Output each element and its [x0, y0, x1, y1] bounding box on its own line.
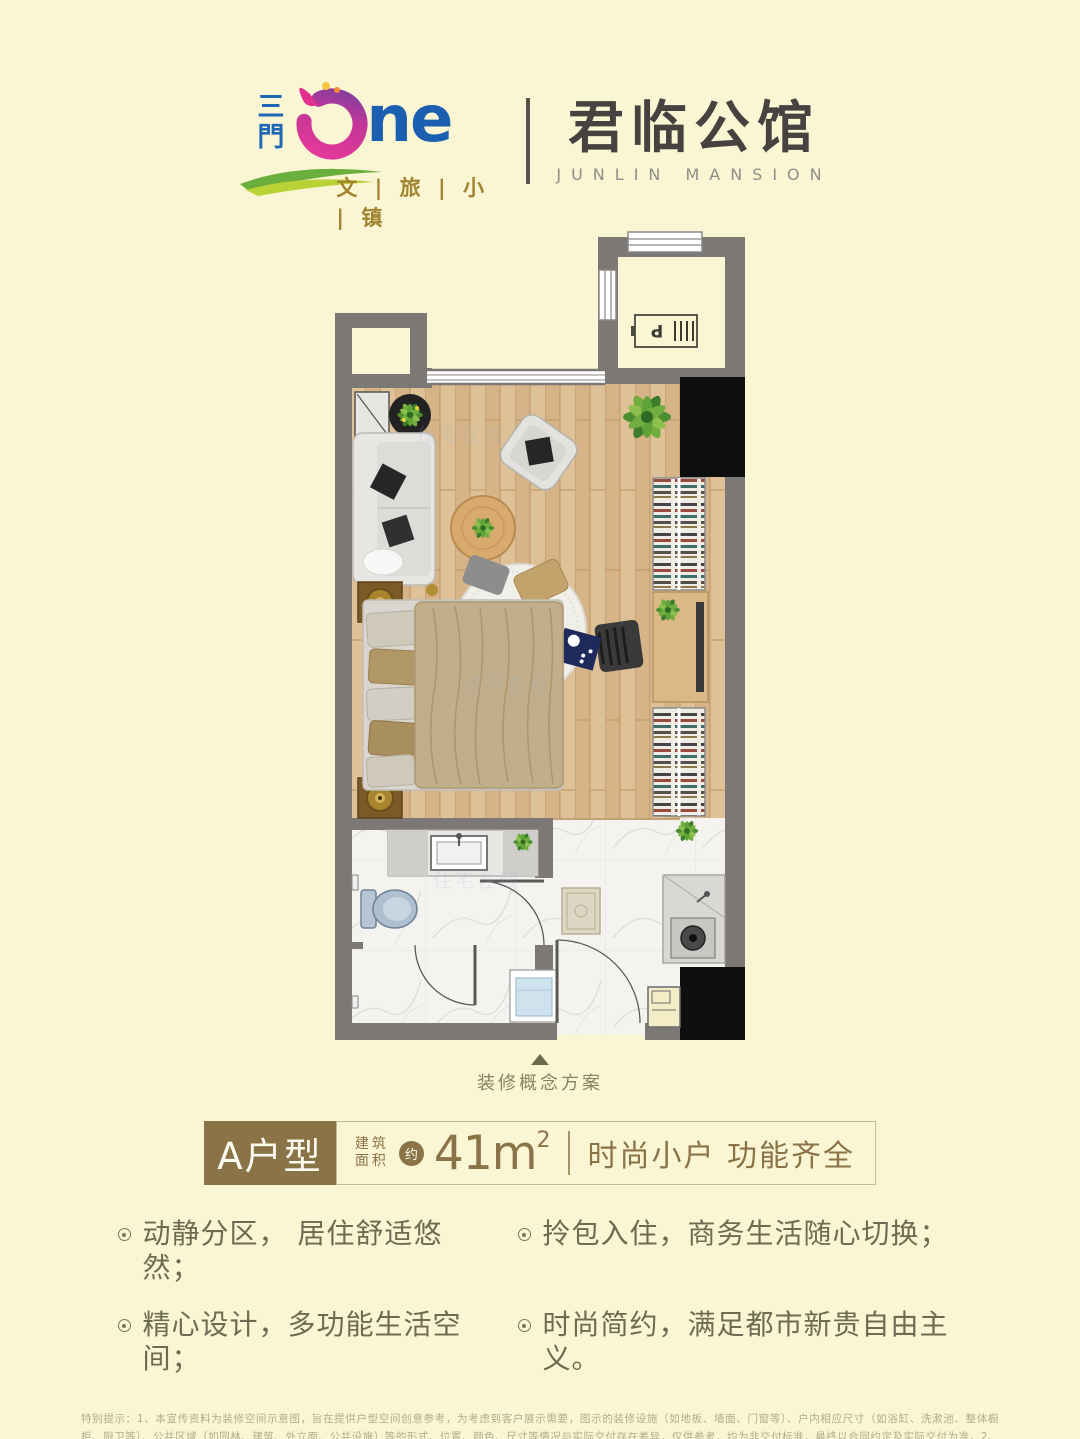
unit-type-badge: A户型 [204, 1121, 336, 1185]
desk [653, 592, 708, 702]
brand-header: 三門 ne 文 | 旅 | 小 | 镇 君临公馆 J [0, 0, 1080, 202]
approx-badge: 约 [399, 1141, 424, 1166]
ac-unit: P [631, 315, 697, 347]
desk-chair [594, 619, 644, 673]
unit-badge-row: A户型 建筑 面积 约 41m2 时尚小户 功能齐全 [0, 1121, 1080, 1185]
window-living [427, 369, 605, 385]
bookshelf-bottom [653, 708, 705, 816]
feature-item: 拎包入住，商务生活随心切换； [518, 1217, 963, 1284]
brand-logo: 三門 ne 文 | 旅 | 小 | 镇 [248, 80, 500, 202]
entry-cabinet [648, 987, 680, 1027]
feature-text: 拎包入住，商务生活随心切换； [543, 1217, 949, 1251]
bookshelf-top [653, 478, 705, 590]
sink-vanity [388, 830, 538, 876]
feature-item: 时尚简约，满足都市新贵自由主义。 [518, 1308, 963, 1375]
hall-rug [562, 888, 600, 934]
wardrobe-block [680, 377, 745, 477]
koi-o-icon [282, 72, 378, 168]
feature-text: 动静分区， 居住舒适悠然； [143, 1217, 478, 1284]
towel-bar-2 [352, 996, 358, 1008]
up-triangle-icon [531, 1054, 549, 1065]
brand-one-text: ne [366, 88, 451, 152]
feature-text: 精心设计，多功能生活空间； [143, 1308, 478, 1375]
poster: 三門 ne 文 | 旅 | 小 | 镇 君临公馆 J [0, 0, 1080, 1439]
floorplan-drawing: P [335, 230, 745, 1040]
window-top-balcony [628, 232, 702, 252]
feature-text: 时尚简约，满足都市新贵自由主义。 [543, 1308, 963, 1375]
bullet-icon [518, 1319, 531, 1332]
bullet-icon [118, 1228, 131, 1241]
coffee-table [451, 496, 515, 560]
brand-vertical-name: 三門 [254, 92, 281, 152]
feature-list: 动静分区， 居住舒适悠然； 拎包入住，商务生活随心切换； 精心设计，多功能生活空… [0, 1217, 1080, 1375]
towel-bar [352, 875, 358, 890]
brand-name-en: JUNLIN MANSION [556, 165, 831, 184]
svg-text:P: P [651, 320, 663, 340]
spec-divider [568, 1131, 570, 1175]
unit-spec-box: 建筑 面积 约 41m2 时尚小户 功能齐全 [336, 1121, 876, 1185]
toilet [361, 890, 417, 928]
floorplan: P [335, 230, 745, 1044]
magazine-rack [355, 392, 389, 436]
area-value: 41m2 [434, 1126, 550, 1181]
washing-machine [510, 970, 558, 1022]
disclaimer-text: 特别提示：1、本宣传资料为装修空间示意图，旨在提供户型空间创意参考，为考虑到客户… [81, 1411, 999, 1439]
unit-tagline: 时尚小户 功能齐全 [588, 1131, 856, 1175]
flue-block [680, 967, 745, 1040]
bullet-icon [518, 1228, 531, 1241]
brand-subtitle: 文 | 旅 | 小 | 镇 [336, 172, 500, 232]
brand-name-block: 君临公馆 JUNLIN MANSION [556, 98, 831, 185]
plan-caption: 装修概念方案 [0, 1054, 1080, 1095]
window-left-balcony [599, 270, 616, 320]
kitchen-counter [663, 875, 725, 963]
brand-name-cn: 君临公馆 [568, 98, 820, 160]
sofa [353, 433, 435, 585]
round-rug-plant [389, 394, 431, 436]
area-label: 建筑 面积 [355, 1136, 389, 1171]
brand-divider [526, 98, 530, 184]
bed [363, 600, 563, 790]
feature-item: 精心设计，多功能生活空间； [118, 1308, 478, 1375]
bullet-icon [118, 1319, 131, 1332]
feature-item: 动静分区， 居住舒适悠然； [118, 1217, 478, 1284]
gold-decor [426, 584, 438, 596]
